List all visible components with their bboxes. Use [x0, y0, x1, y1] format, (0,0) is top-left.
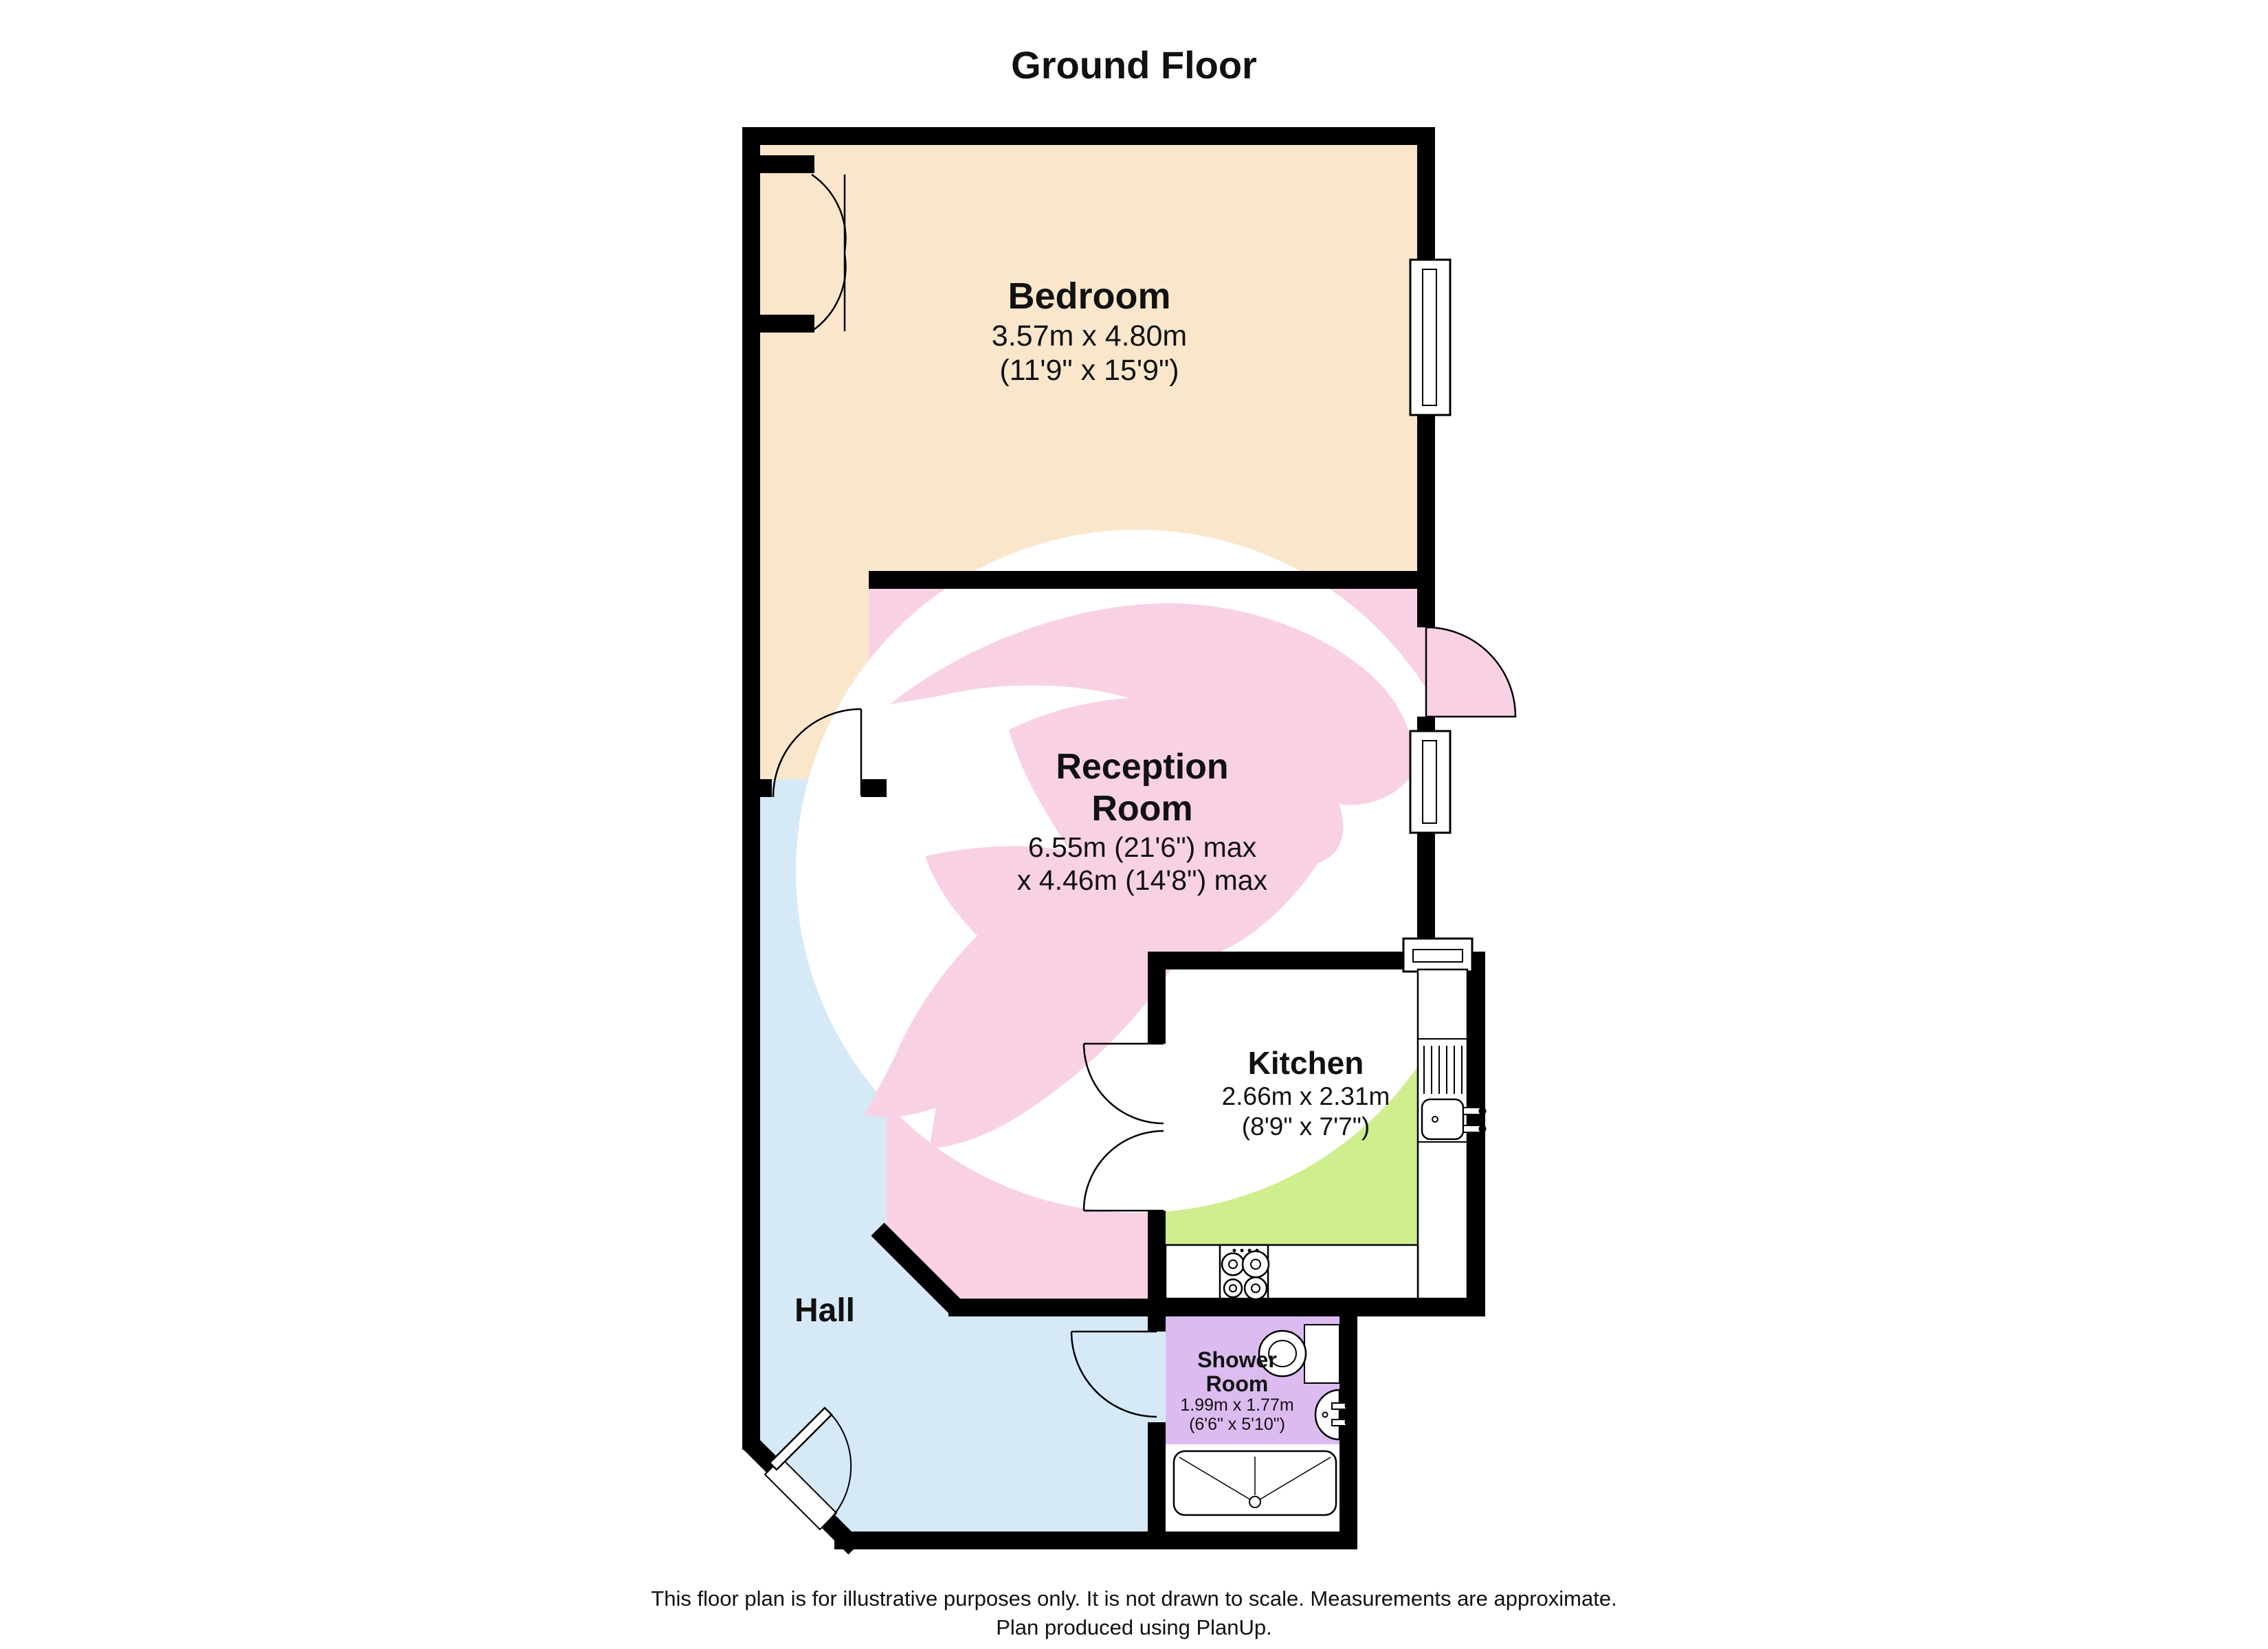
room-label-shower-room: Shower Room 1.99m x 1.77m (6'6" x 5'10")	[1180, 1348, 1293, 1434]
door-swing-fan-icon	[1426, 627, 1515, 717]
bedroom-dimensions-imperial: (11'9" x 15'9")	[992, 353, 1187, 388]
shower-room-dimensions-metric: 1.99m x 1.77m	[1180, 1396, 1293, 1415]
disclaimer-line1: This floor plan is for illustrative purp…	[651, 1584, 1616, 1613]
shower-room-dimensions-imperial: (6'6" x 5'10")	[1180, 1415, 1293, 1435]
shower-room-name-line2: Room	[1180, 1372, 1293, 1396]
room-label-bedroom: Bedroom 3.57m x 4.80m (11'9" x 15'9")	[992, 275, 1187, 388]
hob-icon	[1220, 1245, 1269, 1299]
kitchen-name: Kitchen	[1222, 1044, 1390, 1081]
disclaimer: This floor plan is for illustrative purp…	[651, 1584, 1616, 1642]
bedroom-window-icon	[1410, 260, 1450, 415]
reception-dimensions-metric: 6.55m (21'6") max	[1017, 831, 1267, 864]
kitchen-counter-bottom	[1166, 1245, 1418, 1299]
bedroom-dimensions-metric: 3.57m x 4.80m	[992, 319, 1187, 354]
shower-tray-icon	[1174, 1451, 1336, 1515]
bedroom-name: Bedroom	[992, 275, 1187, 319]
floor-plan-page: Ground Floor	[0, 0, 2268, 1649]
shower-room-name-line1: Shower	[1180, 1348, 1293, 1372]
reception-name-line2: Room	[1017, 788, 1267, 830]
disclaimer-line2: Plan produced using PlanUp.	[651, 1613, 1616, 1642]
kitchen-window-icon	[1403, 939, 1472, 972]
reception-name-line1: Reception	[1017, 746, 1267, 788]
room-label-kitchen: Kitchen 2.66m x 2.31m (8'9" x 7'7")	[1222, 1044, 1390, 1142]
reception-dimensions-imperial: x 4.46m (14'8") max	[1017, 864, 1267, 897]
reception-window-icon	[1410, 731, 1450, 833]
kitchen-dimensions-metric: 2.66m x 2.31m	[1222, 1081, 1390, 1112]
room-label-reception: Reception Room 6.55m (21'6") max x 4.46m…	[1017, 746, 1267, 897]
kitchen-dimensions-imperial: (8'9" x 7'7")	[1222, 1112, 1390, 1142]
hall-name: Hall	[794, 1292, 855, 1331]
room-label-hall: Hall	[794, 1292, 855, 1331]
